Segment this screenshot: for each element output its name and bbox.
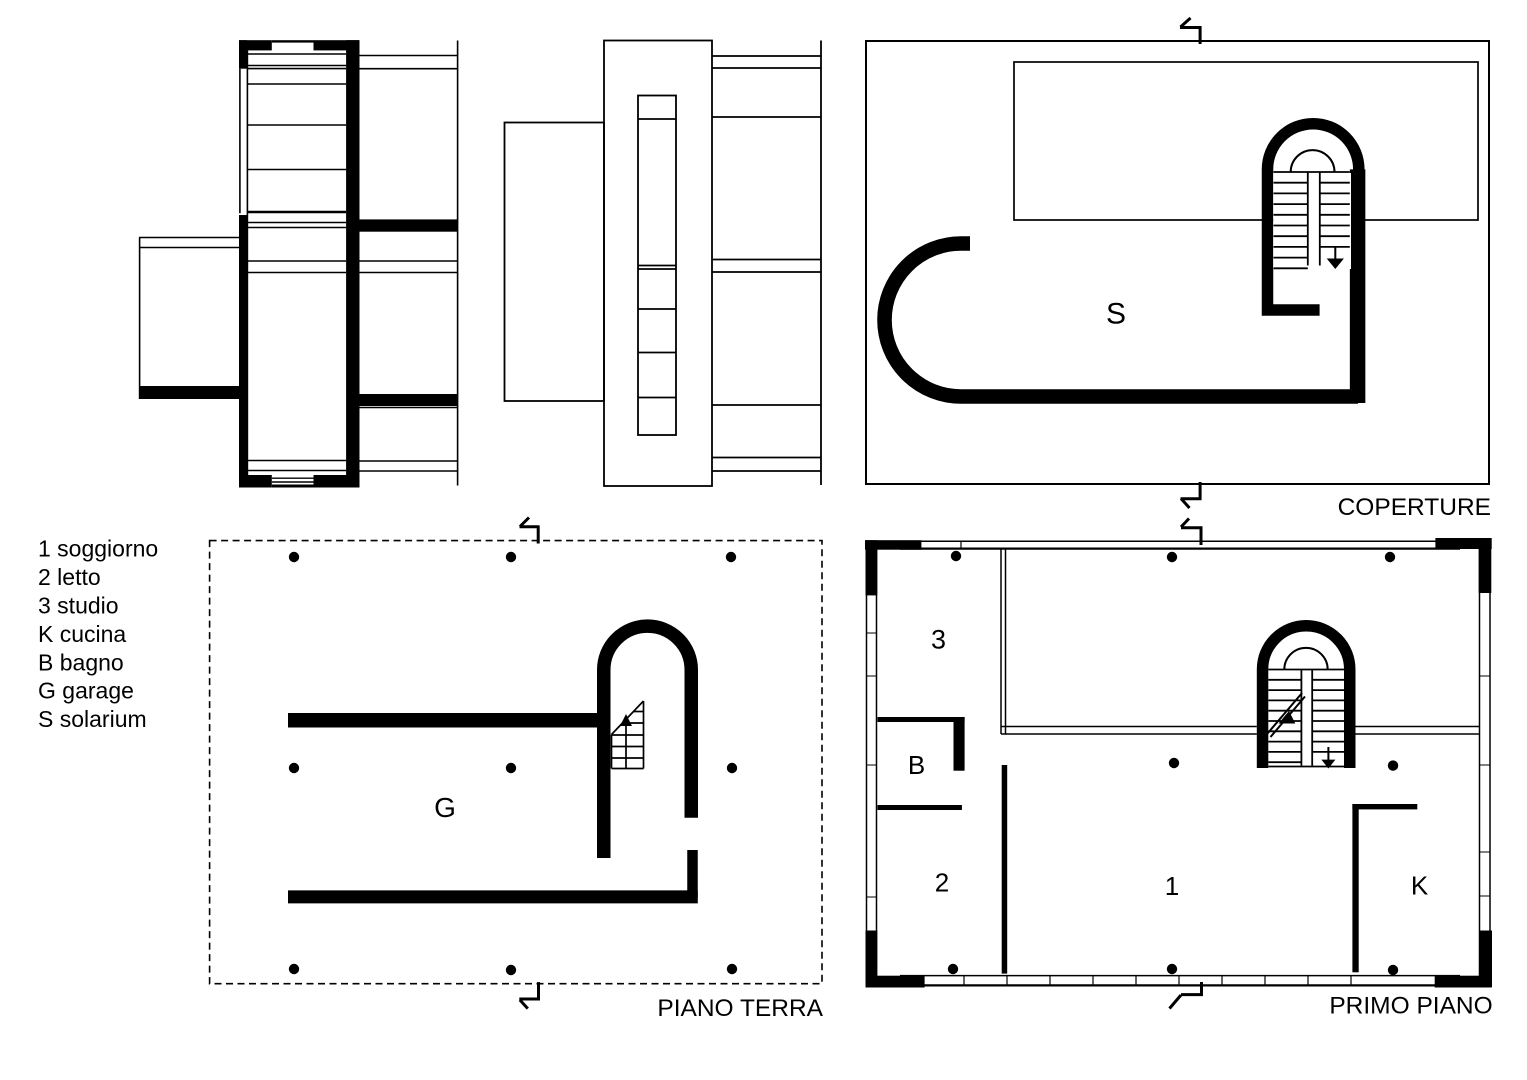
svg-text:1: 1 (1165, 871, 1179, 901)
svg-text:1 soggiorno: 1 soggiorno (38, 536, 158, 562)
svg-text:3 studio: 3 studio (38, 593, 119, 619)
svg-text:G: G (434, 792, 456, 823)
svg-text:PRIMO PIANO: PRIMO PIANO (1329, 993, 1492, 1020)
svg-text:COPERTURE: COPERTURE (1338, 494, 1491, 521)
svg-text:S: S (1106, 298, 1126, 331)
svg-text:B: B (908, 750, 925, 780)
svg-text:B bagno: B bagno (38, 649, 124, 675)
svg-text:K: K (1411, 871, 1429, 901)
svg-text:PIANO TERRA: PIANO TERRA (657, 995, 823, 1022)
svg-text:2 letto: 2 letto (38, 564, 101, 590)
svg-text:3: 3 (931, 625, 946, 655)
svg-text:2: 2 (935, 868, 949, 898)
svg-text:G garage: G garage (38, 678, 134, 704)
svg-text:S solarium: S solarium (38, 706, 147, 732)
svg-text:K cucina: K cucina (38, 621, 126, 647)
